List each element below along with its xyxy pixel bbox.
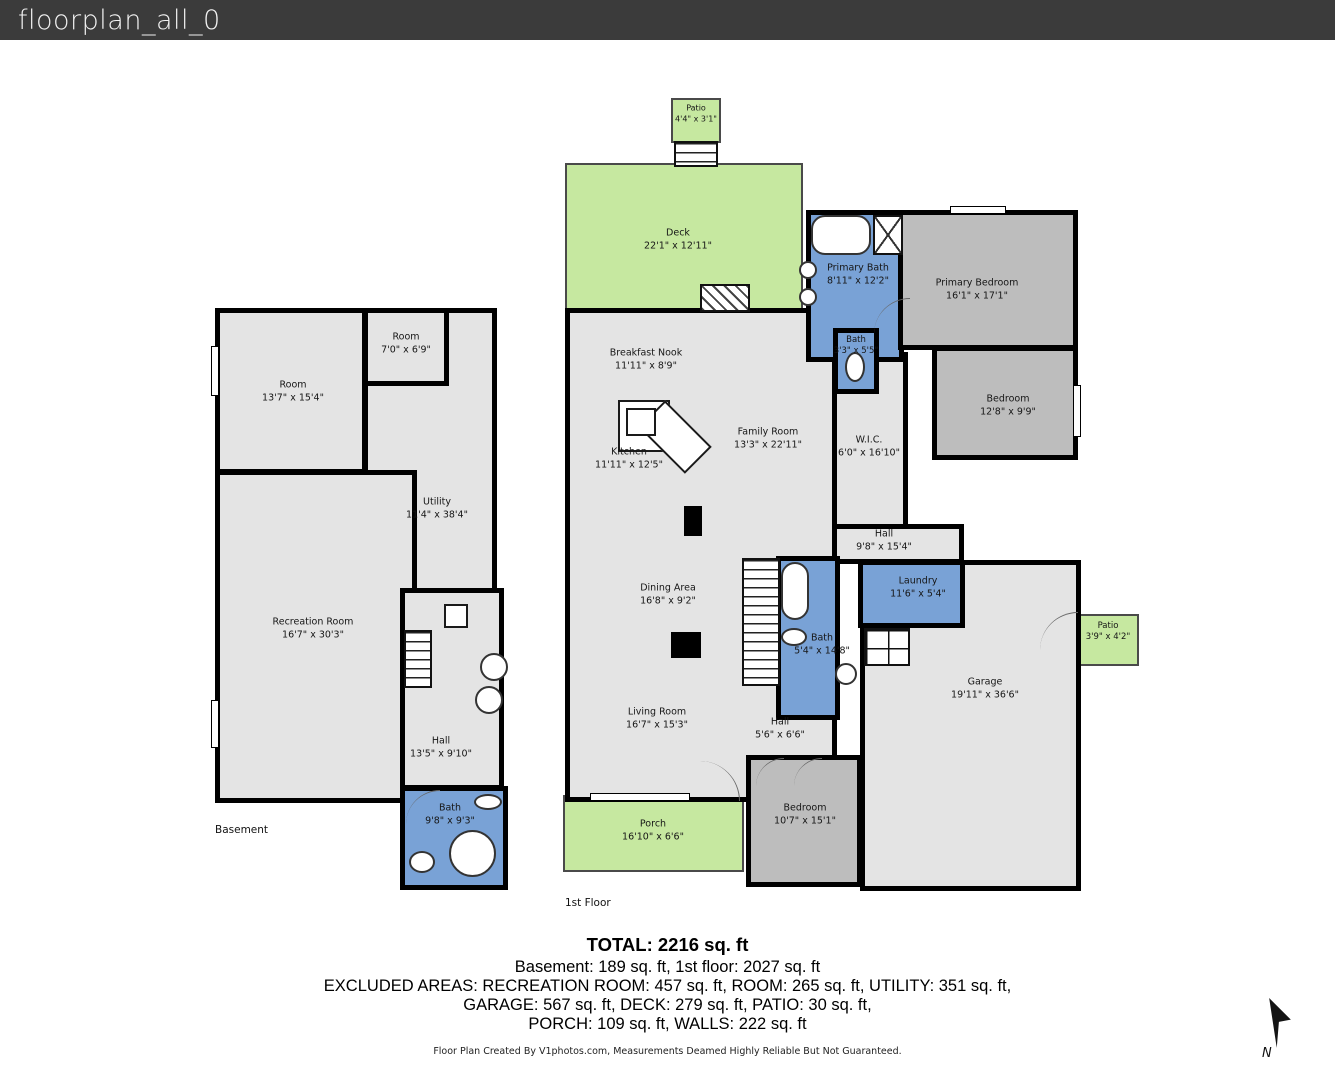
room-name: Bedroom	[980, 393, 1036, 406]
room-dims: 7'0" x 6'9"	[381, 344, 431, 357]
room-name: Bath	[834, 335, 879, 346]
window-title: floorplan_all_0	[18, 5, 221, 36]
dryer	[475, 686, 503, 714]
room-name: W.I.C.	[838, 434, 900, 447]
summary-line: Basement: 189 sq. ft, 1st floor: 2027 sq…	[0, 958, 1335, 977]
round-tub	[449, 830, 496, 877]
window	[1073, 385, 1081, 437]
window	[211, 346, 219, 396]
label-breakfast-nook: Breakfast Nook11'11" x 8'9"	[610, 347, 682, 372]
north-arrow: N	[1262, 998, 1298, 1054]
label-porch: Porch16'10" x 6'6"	[622, 818, 684, 843]
label-basement-room: Room13'7" x 15'4"	[262, 379, 324, 404]
window	[211, 700, 219, 748]
room-dims: 13'5" x 9'10"	[410, 748, 472, 761]
basement-landing	[444, 604, 468, 628]
floorplan-page: floorplan_all_0 Utility11'4" x 38'4"Room…	[0, 0, 1335, 1080]
summary-line: GARAGE: 567 sq. ft, DECK: 279 sq. ft, PA…	[0, 996, 1335, 1015]
summary-total: TOTAL: 2216 sq. ft	[0, 934, 1335, 956]
sink	[835, 663, 857, 685]
room-name: Patio	[1086, 621, 1131, 632]
room-name: Bath	[425, 802, 475, 815]
room-dims: 11'6" x 5'4"	[890, 588, 946, 601]
label-wic: W.I.C.6'0" x 16'10"	[838, 434, 900, 459]
label-basement-hall: Hall13'5" x 9'10"	[410, 735, 472, 760]
room-dims: 11'11" x 12'5"	[595, 459, 663, 472]
room-name: Bath	[794, 632, 850, 645]
room-dims: 11'4" x 38'4"	[406, 509, 468, 522]
label-laundry: Laundry11'6" x 5'4"	[890, 575, 946, 600]
label-family-room: Family Room13'3" x 22'11"	[734, 426, 802, 451]
label-garage: Garage19'11" x 36'6"	[951, 676, 1019, 701]
room-name: Kitchen	[595, 446, 663, 459]
washer	[480, 653, 508, 681]
label-basement-utility: Utility11'4" x 38'4"	[406, 496, 468, 521]
bathtub	[811, 215, 871, 255]
toilet	[474, 794, 502, 810]
label-living-room: Living Room16'7" x 15'3"	[626, 706, 688, 731]
room-name: Patio	[675, 103, 717, 114]
room-dims: 4'4" x 3'1"	[675, 114, 717, 125]
label-patio-side: Patio3'9" x 4'2"	[1086, 621, 1131, 643]
sink	[799, 288, 817, 306]
room-name: Hall	[856, 528, 912, 541]
garage-steps	[864, 628, 910, 666]
room-dims: 16'7" x 30'3"	[273, 629, 354, 642]
room-dims: 9'8" x 9'3"	[425, 815, 475, 828]
room-dims: 16'10" x 6'6"	[622, 831, 684, 844]
room-dims: 10'7" x 15'1"	[774, 815, 836, 828]
summary-line: PORCH: 109 sq. ft, WALLS: 222 sq. ft	[0, 1015, 1335, 1034]
room-dims: 11'11" x 8'9"	[610, 360, 682, 373]
label-basement-room-small: Room7'0" x 6'9"	[381, 331, 431, 356]
basement-stairs	[404, 630, 432, 688]
room-dims: 16'8" x 9'2"	[640, 595, 696, 608]
label-bath-small: Bath3'3" x 5'5"	[834, 335, 879, 357]
room-name: Porch	[622, 818, 684, 831]
sink	[409, 851, 435, 873]
label-hall-upper: Hall9'8" x 15'4"	[856, 528, 912, 553]
room-name: Breakfast Nook	[610, 347, 682, 360]
title-bar: floorplan_all_0	[0, 0, 1335, 40]
room-name: Deck	[644, 227, 712, 240]
label-bath-main: Bath5'4" x 14'8"	[794, 632, 850, 657]
room-dims: 16'7" x 15'3"	[626, 719, 688, 732]
room-dims: 3'3" x 5'5"	[834, 346, 879, 357]
label-deck: Deck22'1" x 12'11"	[644, 227, 712, 252]
room-dims: 16'1" x 17'1"	[936, 290, 1019, 303]
room-name: Bedroom	[774, 802, 836, 815]
label-primary-bedroom: Primary Bedroom16'1" x 17'1"	[936, 277, 1019, 302]
room-dims: 8'11" x 12'2"	[827, 275, 889, 288]
room-name: Family Room	[734, 426, 802, 439]
room-name: Dining Area	[640, 582, 696, 595]
room-name: Recreation Room	[273, 616, 354, 629]
room-name: Hall	[755, 716, 805, 729]
room-dims: 22'1" x 12'11"	[644, 240, 712, 253]
room-name: Room	[381, 331, 431, 344]
label-bedroom-2: Bedroom12'8" x 9'9"	[980, 393, 1036, 418]
bathtub	[781, 562, 809, 620]
label-dining-area: Dining Area16'8" x 9'2"	[640, 582, 696, 607]
north-label: N	[1262, 1046, 1272, 1061]
room-dims: 19'11" x 36'6"	[951, 689, 1019, 702]
dining-pillar	[671, 632, 701, 658]
room-name: Hall	[410, 735, 472, 748]
room-dims: 9'8" x 15'4"	[856, 541, 912, 554]
north-arrow-icon	[1262, 998, 1298, 1050]
room-dims: 6'0" x 16'10"	[838, 447, 900, 460]
room-dims: 5'6" x 6'6"	[755, 729, 805, 742]
plan-caption-first-floor: 1st Floor	[565, 897, 611, 909]
shower	[873, 215, 903, 255]
room-dims: 12'8" x 9'9"	[980, 406, 1036, 419]
room-name: Primary Bath	[827, 262, 889, 275]
sink	[799, 261, 817, 279]
room-dims: 5'4" x 14'8"	[794, 645, 850, 658]
room-dims: 13'3" x 22'11"	[734, 439, 802, 452]
label-primary-bath: Primary Bath8'11" x 12'2"	[827, 262, 889, 287]
kitchen-sink-box	[626, 408, 656, 436]
label-patio-upper: Patio4'4" x 3'1"	[675, 103, 717, 124]
label-kitchen: Kitchen11'11" x 12'5"	[595, 446, 663, 471]
label-hall-lower: Hall5'6" x 6'6"	[755, 716, 805, 741]
patio-stairs	[674, 141, 718, 167]
plan-caption-basement: Basement	[215, 824, 268, 836]
summary-line: EXCLUDED AREAS: RECREATION ROOM: 457 sq.…	[0, 977, 1335, 996]
room-name: Utility	[406, 496, 468, 509]
label-basement-bath: Bath9'8" x 9'3"	[425, 802, 475, 827]
room-name: Garage	[951, 676, 1019, 689]
kitchen-pillar	[684, 506, 702, 536]
fireplace	[700, 284, 750, 312]
room-name: Laundry	[890, 575, 946, 588]
room-dims: 3'9" x 4'2"	[1086, 632, 1131, 643]
area-summary: TOTAL: 2216 sq. ft Basement: 189 sq. ft,…	[0, 934, 1335, 1034]
label-bedroom-3: Bedroom10'7" x 15'1"	[774, 802, 836, 827]
room-name: Room	[262, 379, 324, 392]
credit-text: Floor Plan Created By V1photos.com, Meas…	[0, 1046, 1335, 1057]
window	[590, 793, 690, 801]
label-basement-recreation-room: Recreation Room16'7" x 30'3"	[273, 616, 354, 641]
room-name: Living Room	[626, 706, 688, 719]
window	[950, 206, 1006, 214]
room-name: Primary Bedroom	[936, 277, 1019, 290]
room-dims: 13'7" x 15'4"	[262, 392, 324, 405]
main-stairs	[742, 558, 780, 686]
